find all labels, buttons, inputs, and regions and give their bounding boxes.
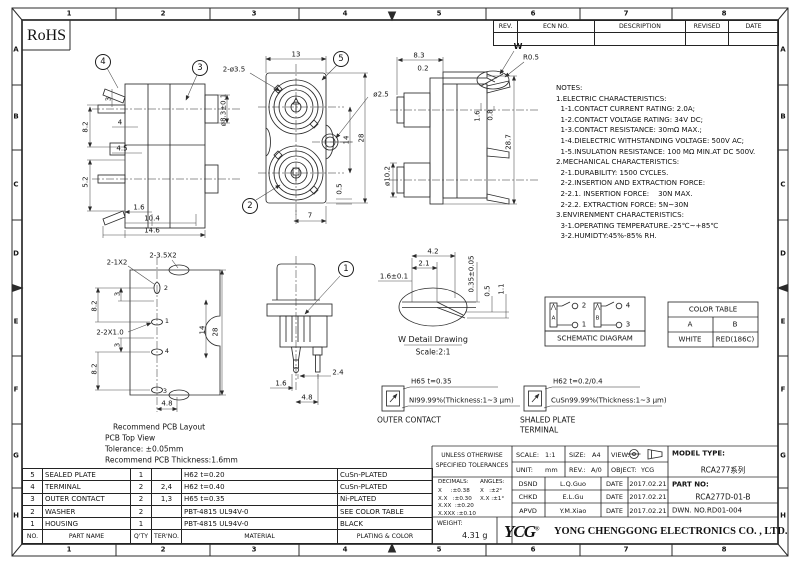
part-no: 4 [23,481,43,493]
shaled-plate-caption: SHALED PLATE [520,416,575,424]
ycg-logo: YCG® [504,522,539,542]
part-qty: 1 [131,469,152,481]
pcb-caption-line: Tolerance: ±0.05mm [105,445,183,453]
dim-label: ø2.5 [373,92,388,99]
notes-line: 2-1.DURABILITY: 1500 CYCLES. [556,168,668,177]
view-w-detail-art [399,288,476,326]
schematic-terminal: 2 [582,303,586,310]
engineering-drawing-sheet: 1 2 3 4 5 6 7 8 1 2 3 4 5 6 7 8 A B C D … [0,0,800,565]
rohs-badge: RoHS [24,22,69,49]
part-terno [152,518,182,530]
table-row: 3 OUTER CONTACT 2 1,3 H65 t=0.35 Ni-PLAT… [23,493,433,505]
w-detail-title: W Detail Drawing [398,336,468,344]
sign-role: DSND [519,481,538,488]
dim-label: 4.8 [301,395,312,402]
dim-label: ø8.3±0.1 [221,94,228,126]
notes-line: 1.ELECTRIC CHARACTERISTICS: [556,94,667,103]
dim-label: 0.8 [488,109,495,120]
revision-header: REV. [494,21,518,33]
notes-line: 2-2.2. EXTRACTION FORCE: 5N~30N [556,200,688,209]
border-row-label: A [780,47,785,54]
schematic-terminal: 4 [626,303,630,310]
sign-role: CHKD [519,494,538,501]
detail-marker-label: W [514,43,523,51]
size-value: A4 [592,452,601,459]
pcb-caption-line: Recommend PCB Thickness:1.6mm [105,456,238,464]
dim-label: 8.2 [83,121,90,132]
part-name: OUTER CONTACT [43,493,131,505]
unit-value: mm [545,467,558,474]
col-header: NO. [23,530,43,544]
part-qty: 2 [131,505,152,517]
view-pcb-art [130,265,220,400]
parts-table: 5 SEALED PLATE 1 H62 t=0.20 CuSn-PLATED … [22,468,433,544]
notes-line: 3-1.OPERATING TEMPERATURE.-25℃~+85℃ [556,221,718,230]
schematic-caption: SCHEMATIC DIAGRAM [557,336,633,343]
sign-date: 2017.02.21 [629,481,666,488]
dim-label: 1.6±0.1 [380,274,408,281]
dim-label: 0.5 [337,183,344,194]
dim-label: 8.2 [92,363,99,374]
part-no-value: RCA277D-01-B [695,493,750,501]
object-value: YCG [641,467,654,474]
part-plating: SEE COLOR TABLE [338,505,433,517]
balloon-4: 4 [95,54,111,70]
part-terno [152,505,182,517]
angles-header: ANGLES: [480,480,504,486]
border-col-label: 8 [722,547,727,554]
schematic-terminal: 1 [582,322,586,329]
sign-name: E.L.Gu [562,494,583,501]
part-no: 1 [23,518,43,530]
view-right-side-art [397,71,510,204]
dim-label: 14.6 [144,228,160,235]
company-name: YONG CHENGGONG ELECTRONICS CO. , LTD. [554,526,787,537]
color-table-title: COLOR TABLE [689,307,737,314]
view-w-detail-dims [378,252,509,345]
rev-value: A/0 [591,467,602,474]
dim-label: R0.5 [523,55,539,62]
pcb-caption-line: PCB Top View [105,434,155,442]
part-material: PBT-4815 UL94V-0 [182,518,338,530]
part-qty: 2 [131,481,152,493]
view-label: VIEW: [611,452,630,459]
object-label: OBJECT: [611,467,637,474]
border-col-label: 7 [624,11,629,18]
sign-date-label: DATE [606,507,623,514]
table-row: 2 WASHER 2 PBT-4815 UL94V-0 SEE COLOR TA… [23,505,433,517]
part-no: 3 [23,493,43,505]
balloon-1: 1 [338,261,354,277]
border-row-label: B [13,114,18,121]
border-row-label: C [780,182,785,189]
dim-label: 0.2 [417,66,428,73]
dim-label: 3 [106,97,113,101]
part-name: TERMINAL [43,481,131,493]
dim-label: 5.2 [83,176,90,187]
border-col-label: 4 [343,547,348,554]
part-terno: 2,4 [152,481,182,493]
angle-tolerance: X :±2° [480,489,502,495]
dim-label: 2-3.5X2 [149,253,176,260]
part-plating: CuSn-PLATED [338,469,433,481]
scale-value: 1:1 [545,452,555,459]
part-qty: 1 [131,518,152,530]
weight-label: WEIGHT: [437,521,463,527]
size-label: SIZE: [569,452,586,459]
balloon-3: 3 [192,60,208,76]
notes-title: NOTES: [556,83,582,92]
dim-label: ø10.2 [385,166,392,186]
outer-contact-material: H65 t=0.35 [411,379,452,386]
dim-label: 4.2 [427,249,438,256]
model-type-value: RCA277系列 [701,466,746,474]
border-col-label: 1 [67,547,72,554]
color-table-value: WHITE [679,337,702,344]
parts-table-header-row: NO. PART NAME Q'TY TER'NO. MATERIAL PLAT… [23,530,433,544]
dim-label: 3 [115,292,122,296]
dim-label: 1.6 [133,205,144,212]
border-col-label: 2 [161,547,166,554]
view-front-art [266,73,338,203]
weight-value: 4.31 g [462,532,487,540]
part-terno: 1,3 [152,493,182,505]
dim-label: 0.5 [485,285,492,296]
col-header: TER'NO. [152,530,182,544]
notes-line: 1-1.CONTACT CURRENT RATING: 2.0A; [556,104,695,113]
col-header: PART NAME [43,530,131,544]
revision-header: DESCRIPTION [595,21,686,33]
dim-label: 14 [200,326,207,335]
border-col-label: 1 [67,11,72,18]
notes-line: 1-4.DIELECTRIC WITHSTANDING VOLTAGE: 500… [556,136,744,145]
rev-label: REV.: [569,467,586,474]
part-qty: 2 [131,493,152,505]
unit-label: UNIT: [516,467,533,474]
notes-line: 1-5.INSULATION RESISTANCE: 100 MΩ MIN.AT… [556,147,755,156]
notes-line: 3.ENVIRENMENT CHARACTERISTICS: [556,210,684,219]
notes-block: NOTES: 1.ELECTRIC CHARACTERISTICS: 1-1.C… [556,83,755,242]
sign-date-label: DATE [606,481,623,488]
dim-label: 1.1 [499,283,506,294]
dim-label: 2-ø3.5 [223,67,245,74]
tolerance-title: UNLESS OTHERWISE [441,453,502,459]
revision-header: DATE [729,21,779,33]
dim-label: 13 [292,52,301,59]
part-name: SEALED PLATE [43,469,131,481]
dim-label: 2-1X2 [107,260,128,267]
logo-text: YCG [504,522,535,541]
part-name: WASHER [43,505,131,517]
dim-label: 10.4 [144,216,160,223]
border-col-label: 4 [343,11,348,18]
decimal-tolerance: X.X :±0.30 [438,497,472,503]
border-row-label: D [780,251,786,258]
sign-date: 2017.02.21 [629,507,666,514]
table-row: 4 TERMINAL 2 2,4 H62 t=0.40 CuSn-PLATED [23,481,433,493]
dim-label: 1.6 [275,381,286,388]
pad-number: 2 [164,285,168,292]
border-row-label: H [13,513,19,520]
dim-label: 28 [213,328,220,337]
border-row-label: E [14,319,19,326]
part-material: H62 t=0.40 [182,481,338,493]
dim-label: 4.5 [116,146,127,153]
notes-line: 1-3.CONTACT RESISTANCE: 30mΩ MAX.; [556,125,702,134]
border-row-label: H [780,513,786,520]
revision-cell [518,33,595,46]
sign-name: L.Q.Guo [560,481,586,488]
pad-number: 4 [165,348,169,355]
border-row-label: G [780,453,786,460]
decimal-tolerance: X.XXX :±0.10 [438,512,476,518]
border-col-label: 5 [437,547,442,554]
dim-label: 2.1 [418,261,429,268]
col-header: MATERIAL [182,530,338,544]
part-plating: CuSn-PLATED [338,481,433,493]
dim-label: 1.6 [475,110,482,121]
border-col-label: 7 [624,547,629,554]
schematic-contact-b: B [596,316,600,322]
border-col-label: 8 [722,11,727,18]
border-row-label: C [13,182,18,189]
table-row: 5 SEALED PLATE 1 H62 t=0.20 CuSn-PLATED [23,469,433,481]
part-material: H65 t=0.35 [182,493,338,505]
decimal-tolerance: X :±0.38 [438,489,470,495]
part-material: PBT-4815 UL94V-0 [182,505,338,517]
revision-cell [686,33,729,46]
w-detail-scale: Scale:2:1 [416,348,451,356]
revision-header: ECN NO. [518,21,595,33]
dim-label: 8.3 [413,53,424,60]
scale-label: SCALE: [516,452,539,459]
part-no: 5 [23,469,43,481]
border-col-label: 2 [161,11,166,18]
border-row-label: D [13,251,19,258]
balloon-5: 5 [333,51,349,67]
part-no-label: PART NO: [672,482,709,489]
border-col-label: 3 [252,11,257,18]
terminal-caption: TERMINAL [520,426,558,434]
shaled-plate-material: H62 t=0.2/0.4 [553,379,603,386]
notes-line: 2.MECHANICAL CHARACTERISTICS: [556,157,679,166]
balloon-2: 2 [242,198,258,214]
dwn-no-value: RD01-004 [707,507,742,514]
color-table-column: B [733,322,738,329]
border-row-label: B [780,114,785,121]
border-row-label: G [13,453,19,460]
border-col-label: 5 [437,11,442,18]
sign-name: Y.M.Xiao [560,507,587,514]
dwn-no-label: DWN. NO.: [672,507,709,514]
notes-line: 3-2.HUMIDTY:45%-85% RH. [556,231,657,240]
dim-label: 2-2X1.0 [96,330,123,337]
dim-label: 8.2 [92,300,99,311]
view-dual-side-art [98,84,218,228]
part-terno [152,469,182,481]
dim-label: 28.7 [506,134,513,150]
part-material: H62 t=0.20 [182,469,338,481]
border-row-label: F [14,387,19,394]
pcb-caption-line: Recommend PCB Layout [113,423,205,431]
tolerance-title: SPECIFIED TOLERANCES [436,463,509,469]
table-row: 1 HOUSING 1 PBT-4815 UL94V-0 BLACK [23,518,433,530]
decimals-header: DECIMALS: [438,480,469,486]
revision-cell [595,33,686,46]
col-header: Q'TY [131,530,152,544]
revision-cell [729,33,779,46]
part-no: 2 [23,505,43,517]
outer-contact-caption: OUTER CONTACT [377,416,441,424]
sign-role: APVD [519,507,537,514]
color-table-value: RED(186C) [716,337,754,344]
color-table-column: A [688,322,693,329]
border-col-label: 6 [531,547,536,554]
revision-table: REV. ECN NO. DESCRIPTION REVISED DATE [493,20,779,46]
notes-line: 2-2.INSERTION AND EXTRACTION FORCE: [556,178,705,187]
notes-line: 1-2.CONTACT VOLTAGE RATING: 34V DC; [556,115,703,124]
dim-label: 14 [344,136,351,145]
part-plating: Ni-PLATED [338,493,433,505]
registered-mark: ® [535,526,539,532]
dim-label: 0.35±0.05 [469,255,476,292]
shaled-plate-plating: CuSn99.99%(Thickness:1~3 μm) [551,398,667,405]
schematic-contact-a: A [552,316,556,322]
pad-number: 3 [163,388,167,395]
dim-label: 4 [118,120,122,127]
model-type-label: MODEL TYPE: [672,451,725,458]
part-name: HOUSING [43,518,131,530]
revision-header: REVISED [686,21,729,33]
decimal-tolerance: X.XX :±0.20 [438,504,474,510]
border-row-label: F [781,387,786,394]
border-row-label: A [13,47,18,54]
view-dual-side-dims [87,68,230,238]
pad-number: 1 [165,318,169,325]
border-col-label: 6 [531,11,536,18]
part-plating: BLACK [338,518,433,530]
schematic-terminal: 3 [626,322,630,329]
dim-label: 2.4 [332,370,343,377]
angle-tolerance: X.X :±1° [480,497,504,503]
sign-date: 2017.02.21 [629,494,666,501]
view-single-art [267,264,332,373]
notes-line: 2-2.1. INSERTION FORCE: 30N MAX. [556,189,693,198]
view-right-side-centerlines [390,110,538,180]
dim-label: 28 [359,134,366,143]
border-row-label: E [781,319,786,326]
outer-contact-plating: NI99.99%(Thickness:1~3 μm) [409,398,514,405]
dim-label: 4.8 [161,401,172,408]
sign-date-label: DATE [606,494,623,501]
dim-label: 3 [115,343,122,347]
col-header: PLATING & COLOR [338,530,433,544]
border-col-label: 3 [252,547,257,554]
dim-label: 7 [308,213,312,220]
